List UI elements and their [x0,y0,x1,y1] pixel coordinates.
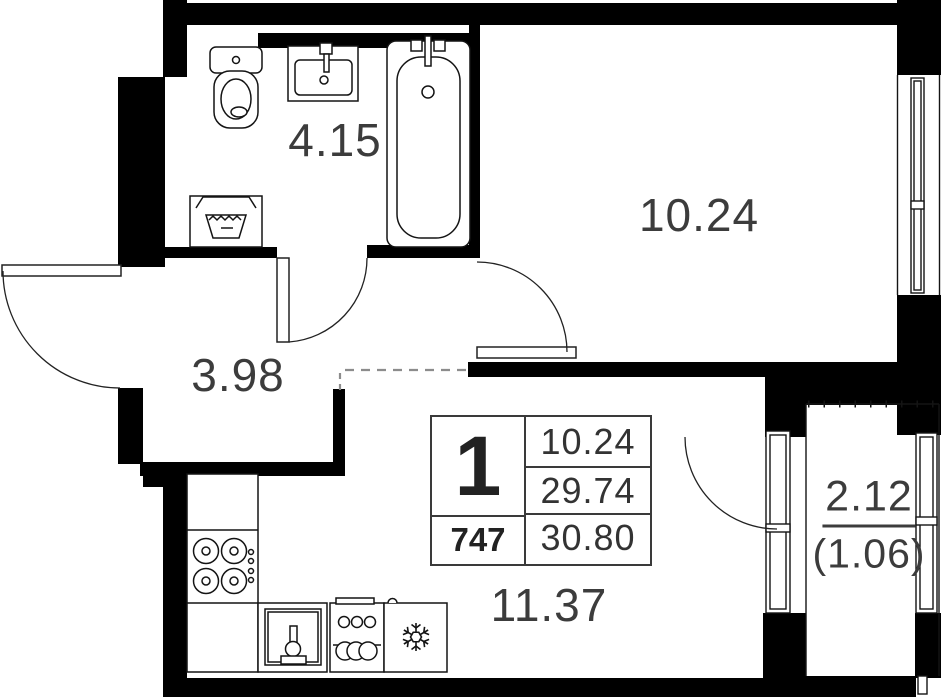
room-door-leaf [477,347,576,358]
wall-kitchen-left [163,462,187,697]
unit-number: 747 [432,515,524,562]
wall-balcony-door-bottom [763,613,806,697]
bathroom-area-label: 4.15 [288,113,382,167]
hallway-area-label: 3.98 [191,348,285,402]
fridge-snowflake-icon [384,599,447,673]
kitchen-living-area-label: 11.37 [491,578,608,632]
kitchen-sink-icon [258,603,327,672]
kitchen-fixtures [187,474,447,672]
info-table-left-column: 1 747 [432,417,526,564]
balcony-door-arc [685,437,777,529]
laundry-basket-icon [190,196,262,247]
balcony-door-frame [766,431,790,613]
wall-top-right-block [897,0,941,75]
total-area-value: 30.80 [526,513,650,560]
room-door-arc [477,262,567,352]
wall-balcony-bottom [806,676,916,697]
wall-room-balcony [806,362,941,405]
doors [2,258,576,358]
info-table-right-column: 10.24 29.74 30.80 [526,417,650,564]
floor-plan: 4.15 3.98 10.24 11.37 2.12 (1.06) 1 747 … [0,0,941,697]
area-without-balcony-value: 29.74 [526,466,650,513]
balcony-area-reduced-label: (1.06) [812,531,925,578]
toilet-icon [210,47,262,128]
wall-left-block [118,77,165,267]
wall-top [163,3,898,25]
bathroom-door-leaf [277,258,289,342]
balcony-area-label: 2.12 [822,473,916,528]
apartment-info-table: 1 747 10.24 29.74 30.80 [430,415,652,566]
zone-divider-dashed [340,370,468,390]
wall-left-strip [163,0,187,77]
wall-hall-stub [333,389,345,476]
wall-room-kitchen [468,362,768,377]
entrance-door-arc [3,271,120,388]
bathtub-icon [387,36,470,247]
bathroom-door-arc [289,258,367,342]
wall-below-right-window [915,613,941,678]
bathroom-sink-icon [288,43,358,101]
balcony-area-labels: 2.12 (1.06) [812,473,925,578]
dishwasher-icon [330,598,384,672]
wall-below-entrance [118,388,143,464]
living-room-area-label: 10.24 [639,188,759,242]
floor-plan-drawing [0,0,941,697]
window-icon [898,75,940,295]
entrance-door-leaf [2,265,121,276]
wall-balcony-door-top [765,362,806,437]
living-area-value: 10.24 [526,417,650,466]
room-count: 1 [432,417,524,515]
wall-bottom [163,678,763,697]
